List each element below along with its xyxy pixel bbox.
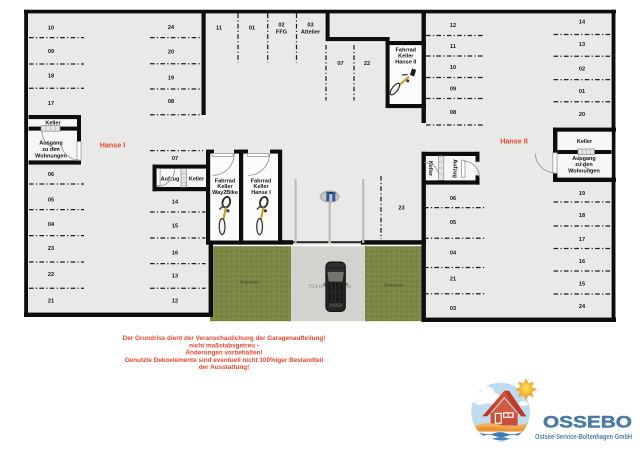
svg-text:OSSEBO: OSSEBO: [543, 413, 632, 432]
svg-text:15: 15: [579, 282, 585, 288]
svg-text:10: 10: [48, 26, 54, 32]
svg-text:05: 05: [450, 220, 456, 226]
svg-text:07: 07: [337, 61, 343, 67]
svg-text:22: 22: [364, 61, 370, 67]
svg-text:02: 02: [579, 67, 585, 73]
svg-text:15: 15: [172, 224, 178, 230]
svg-text:11: 11: [450, 44, 456, 50]
svg-text:Hanse II: Hanse II: [395, 59, 417, 65]
svg-text:03: 03: [450, 306, 456, 312]
svg-text:06: 06: [450, 196, 456, 202]
svg-text:Wohnungen: Wohnungen: [568, 169, 600, 175]
svg-text:Keller: Keller: [577, 139, 593, 145]
svg-text:23: 23: [398, 205, 404, 211]
svg-text:10: 10: [450, 65, 456, 71]
svg-text:21: 21: [450, 277, 456, 283]
svg-text:14: 14: [172, 200, 179, 206]
svg-text:22: 22: [48, 272, 54, 278]
svg-text:09: 09: [450, 87, 456, 93]
svg-text:Wohnungen: Wohnungen: [35, 153, 67, 159]
svg-text:19: 19: [168, 76, 174, 82]
svg-text:14: 14: [579, 20, 586, 26]
svg-text:05: 05: [48, 198, 54, 204]
svg-text:17: 17: [579, 237, 585, 243]
svg-text:Hanse I: Hanse I: [100, 141, 126, 150]
svg-text:Aufzug: Aufzug: [452, 159, 458, 178]
svg-text:20: 20: [168, 50, 174, 56]
svg-text:Draussen: Draussen: [240, 280, 260, 285]
svg-text:04: 04: [48, 222, 55, 228]
svg-text:02: 02: [278, 23, 284, 29]
svg-text:13: 13: [172, 274, 178, 280]
svg-text:20: 20: [579, 112, 585, 118]
svg-text:Der Grundriss dient der Verans: Der Grundriss dient der Veranschaulichun…: [123, 335, 326, 342]
svg-text:Änderungen vorbehalten!: Änderungen vorbehalten!: [185, 349, 262, 357]
svg-text:Hanse I: Hanse I: [251, 190, 271, 196]
svg-text:21: 21: [48, 299, 54, 305]
svg-text:18: 18: [48, 74, 54, 80]
svg-text:zu den: zu den: [575, 162, 593, 168]
svg-text:Keller: Keller: [189, 176, 205, 182]
svg-text:Aufzug: Aufzug: [161, 176, 180, 182]
svg-text:Way2Bike: Way2Bike: [212, 190, 238, 196]
svg-text:Attelier: Attelier: [301, 29, 321, 35]
svg-text:17: 17: [48, 101, 54, 107]
svg-text:08: 08: [450, 110, 456, 116]
svg-text:08: 08: [168, 99, 174, 105]
svg-text:Hanse II: Hanse II: [500, 137, 528, 146]
svg-text:19: 19: [579, 191, 585, 197]
svg-text:nicht maßstabsgetreu -: nicht maßstabsgetreu -: [189, 342, 259, 349]
svg-text:Ostsee-Service-Boltenhagen Gmb: Ostsee-Service-Boltenhagen GmbH: [535, 432, 632, 441]
svg-text:16: 16: [172, 251, 178, 257]
svg-text:11: 11: [216, 26, 222, 32]
svg-text:16: 16: [579, 259, 585, 265]
svg-text:13: 13: [579, 42, 585, 48]
svg-text:23: 23: [48, 246, 54, 252]
svg-text:der Ausstattung!: der Ausstattung!: [199, 364, 250, 371]
svg-text:18: 18: [579, 213, 585, 219]
svg-text:09: 09: [48, 49, 54, 55]
svg-text:zu den: zu den: [42, 147, 60, 153]
svg-text:24: 24: [168, 25, 175, 31]
svg-text:12: 12: [450, 23, 456, 29]
svg-text:Ausgang: Ausgang: [572, 156, 596, 162]
svg-text:03: 03: [307, 23, 313, 29]
svg-text:FFG: FFG: [276, 29, 287, 35]
svg-text:12: 12: [172, 299, 178, 305]
svg-text:01: 01: [579, 89, 585, 95]
svg-text:24: 24: [579, 304, 586, 310]
svg-text:Draussen: Draussen: [384, 283, 404, 288]
svg-text:01: 01: [249, 26, 255, 32]
svg-text:07: 07: [172, 156, 178, 162]
svg-text:06: 06: [48, 172, 54, 178]
svg-text:04: 04: [450, 251, 457, 257]
svg-text:Ausgang: Ausgang: [39, 141, 63, 147]
svg-text:Genutzte Dekoelemente sind eve: Genutzte Dekoelemente sind eventuell nic…: [125, 357, 324, 364]
